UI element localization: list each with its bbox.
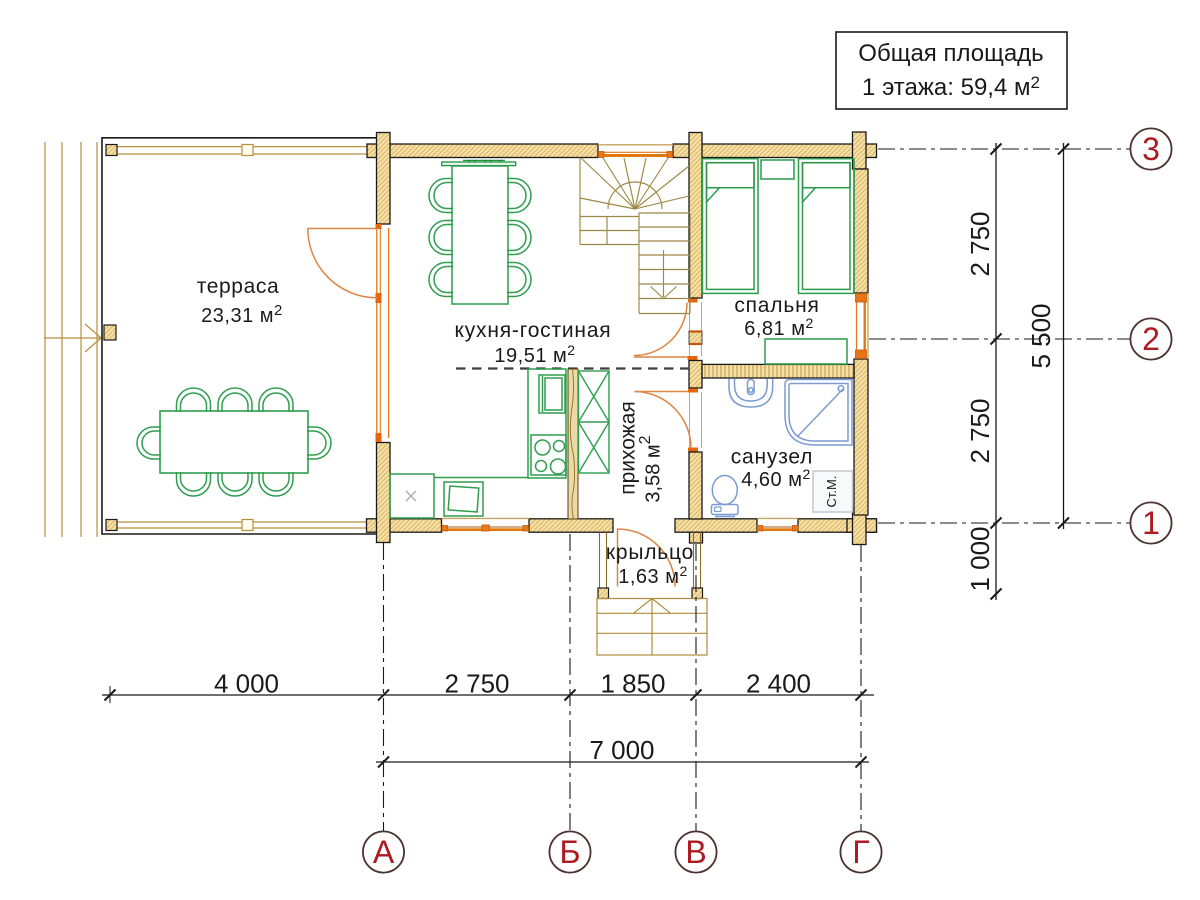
svg-text:1: 1 bbox=[1142, 505, 1160, 541]
svg-text:2 750: 2 750 bbox=[965, 398, 995, 463]
svg-text:1 этажа: 59,4 м2: 1 этажа: 59,4 м2 bbox=[862, 73, 1040, 101]
svg-text:23,31 м2: 23,31 м2 bbox=[201, 302, 283, 327]
svg-text:терраса: терраса bbox=[197, 275, 279, 298]
svg-text:Г: Г bbox=[852, 834, 869, 870]
svg-text:В: В bbox=[685, 834, 706, 870]
svg-text:4 000: 4 000 bbox=[214, 669, 279, 699]
svg-text:2: 2 bbox=[1142, 321, 1160, 357]
svg-text:кухня-гостиная: кухня-гостиная bbox=[455, 319, 612, 342]
svg-text:1 000: 1 000 bbox=[965, 526, 995, 591]
svg-text:2 750: 2 750 bbox=[444, 669, 509, 699]
svg-text:Б: Б bbox=[560, 834, 581, 870]
svg-text:санузел: санузел bbox=[731, 446, 814, 469]
svg-text:прихожая: прихожая bbox=[617, 401, 640, 495]
svg-text:5 500: 5 500 bbox=[1026, 303, 1056, 368]
svg-text:19,51 м2: 19,51 м2 bbox=[494, 342, 575, 367]
svg-text:3: 3 bbox=[1142, 131, 1160, 167]
svg-text:6,81 м2: 6,81 м2 bbox=[744, 315, 814, 340]
svg-text:крыльцо: крыльцо bbox=[606, 541, 694, 564]
svg-text:2 400: 2 400 bbox=[746, 669, 811, 699]
svg-text:спальня: спальня bbox=[734, 294, 819, 317]
svg-text:7 000: 7 000 bbox=[589, 735, 654, 765]
svg-text:4,60 м2: 4,60 м2 bbox=[741, 466, 811, 491]
svg-text:А: А bbox=[373, 834, 395, 870]
svg-text:Ст.М.: Ст.М. bbox=[824, 476, 839, 508]
svg-text:2 750: 2 750 bbox=[965, 211, 995, 276]
svg-text:1,63 м2: 1,63 м2 bbox=[618, 563, 688, 588]
svg-text:1 850: 1 850 bbox=[600, 669, 665, 699]
svg-text:Общая площадь: Общая площадь bbox=[858, 40, 1043, 67]
